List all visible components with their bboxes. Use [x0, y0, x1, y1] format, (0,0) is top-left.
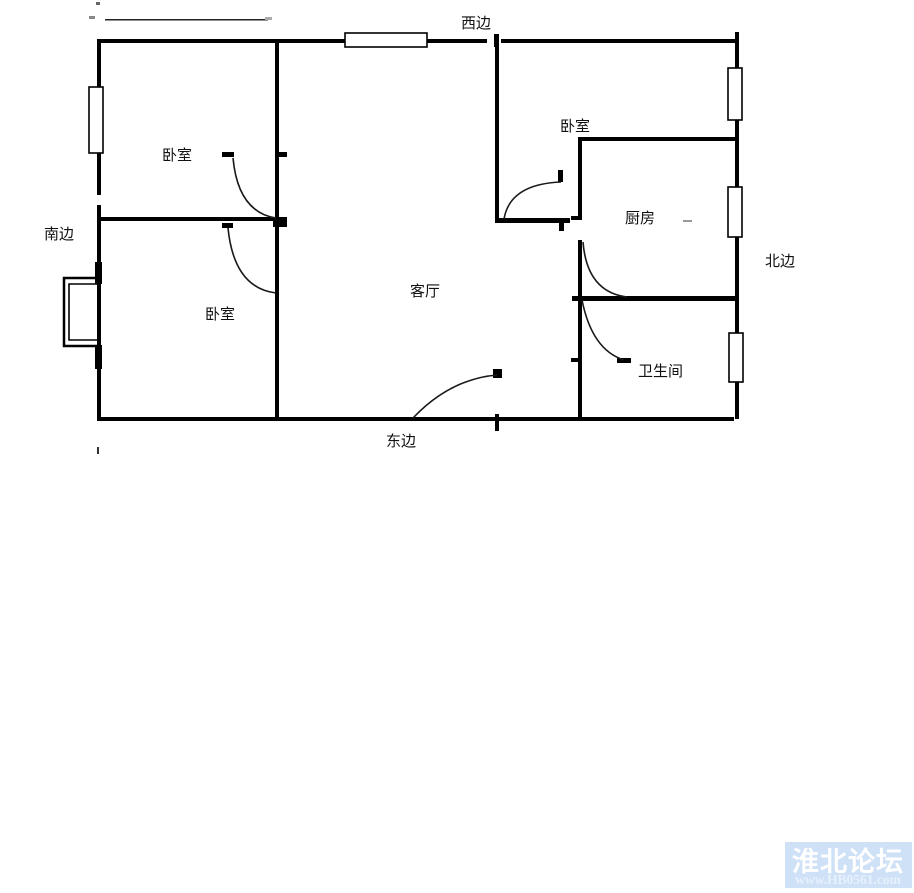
door-arc-bedroom1 — [233, 158, 276, 218]
wall-between-bedrooms — [99, 217, 287, 221]
wall-tick — [571, 216, 578, 220]
window-right-wall-kitchen — [728, 187, 742, 237]
entry-door-jamb-tick — [495, 414, 499, 431]
direction-south-label: 南边 — [44, 226, 74, 243]
wall-tick — [559, 223, 564, 231]
stray-mark — [265, 17, 272, 20]
door-arc-hall — [504, 182, 561, 219]
wall-kitchen-left-lower — [578, 240, 582, 419]
watermark-site-url: www.HB0561.com — [795, 872, 902, 887]
living-room-label: 客厅 — [410, 283, 440, 300]
balcony-inner-outline — [69, 284, 100, 340]
stray-mark — [89, 16, 95, 19]
stray-mark — [683, 220, 692, 222]
top-thin-guide-line — [105, 19, 268, 21]
wall-kitchen-bathroom-divider — [572, 296, 737, 301]
bedroom3-label: 卧室 — [560, 118, 590, 135]
wall-left-lower — [97, 205, 101, 419]
wall-hall-bottom — [495, 218, 570, 223]
door-arc-bedroom2 — [228, 228, 276, 293]
wall-bedroom3-kitchen-divider — [578, 137, 738, 141]
wall-left-thick-pier-lower — [95, 345, 102, 369]
door-leaf-bedroom2 — [222, 223, 233, 228]
door-leaf-hall — [558, 170, 563, 182]
window-right-wall-bathroom — [729, 333, 743, 382]
wall-top-left-segment — [97, 39, 487, 43]
bathroom-label: 卫生间 — [638, 363, 683, 380]
floor-plan-canvas: 卧室 卧室 卧室 客厅 厨房 卫生间 西边 南边 北边 东边 淮北论坛 www.… — [0, 0, 914, 893]
door-arc-kitchen — [583, 242, 627, 297]
wall-bedrooms-living-divider — [275, 43, 279, 417]
watermark: 淮北论坛 www.HB0561.com — [785, 842, 912, 888]
wall-top-junction-tick — [494, 34, 499, 47]
door-arc-entry — [413, 375, 497, 418]
stray-mark — [96, 2, 100, 5]
kitchen-label: 厨房 — [625, 210, 655, 227]
window-top-wall — [345, 33, 427, 47]
wall-hall-left — [495, 43, 499, 222]
wall-top-right-segment — [501, 39, 739, 43]
floor-plan-drawing: 卧室 卧室 卧室 客厅 厨房 卫生间 西边 南边 北边 东边 淮北论坛 www.… — [0, 0, 914, 893]
direction-east-label: 东边 — [386, 433, 416, 450]
window-left-wall — [89, 87, 103, 153]
stray-mark — [97, 447, 99, 454]
window-right-wall-bedroom3 — [728, 68, 742, 120]
door-arc-bathroom — [582, 300, 624, 360]
bedroom2-label: 卧室 — [205, 306, 235, 323]
direction-west-label: 西边 — [461, 15, 491, 32]
direction-north-label: 北边 — [765, 253, 795, 270]
door-leaf-bedroom1 — [222, 152, 234, 157]
wall-left-thick-pier-upper — [95, 262, 102, 284]
wall-tick — [275, 152, 287, 157]
door-leaf-entry — [493, 369, 502, 378]
wall-kitchen-left-upper — [578, 137, 582, 220]
wall-tick — [571, 358, 578, 362]
bedroom1-label: 卧室 — [162, 147, 192, 164]
wall-bottom — [97, 417, 734, 421]
